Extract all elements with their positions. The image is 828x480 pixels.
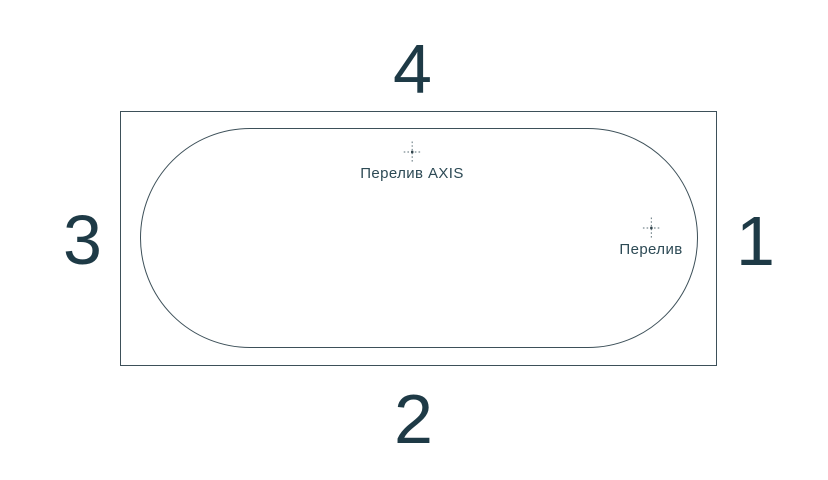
side-label-3: 3 [63, 205, 101, 275]
crosshair-icon [401, 141, 423, 163]
side-label-2: 2 [394, 384, 432, 454]
overflow-marker: Перелив [619, 217, 682, 258]
side-label-1: 1 [736, 206, 774, 276]
bathtub-scheme: 4 3 1 2 Перелив AXIS Перелив [0, 0, 828, 480]
side-label-4: 4 [393, 34, 431, 104]
overflow-label: Перелив [619, 242, 682, 258]
overflow-axis-label: Перелив AXIS [360, 166, 464, 182]
crosshair-icon [640, 217, 662, 239]
overflow-axis-marker: Перелив AXIS [360, 141, 464, 182]
